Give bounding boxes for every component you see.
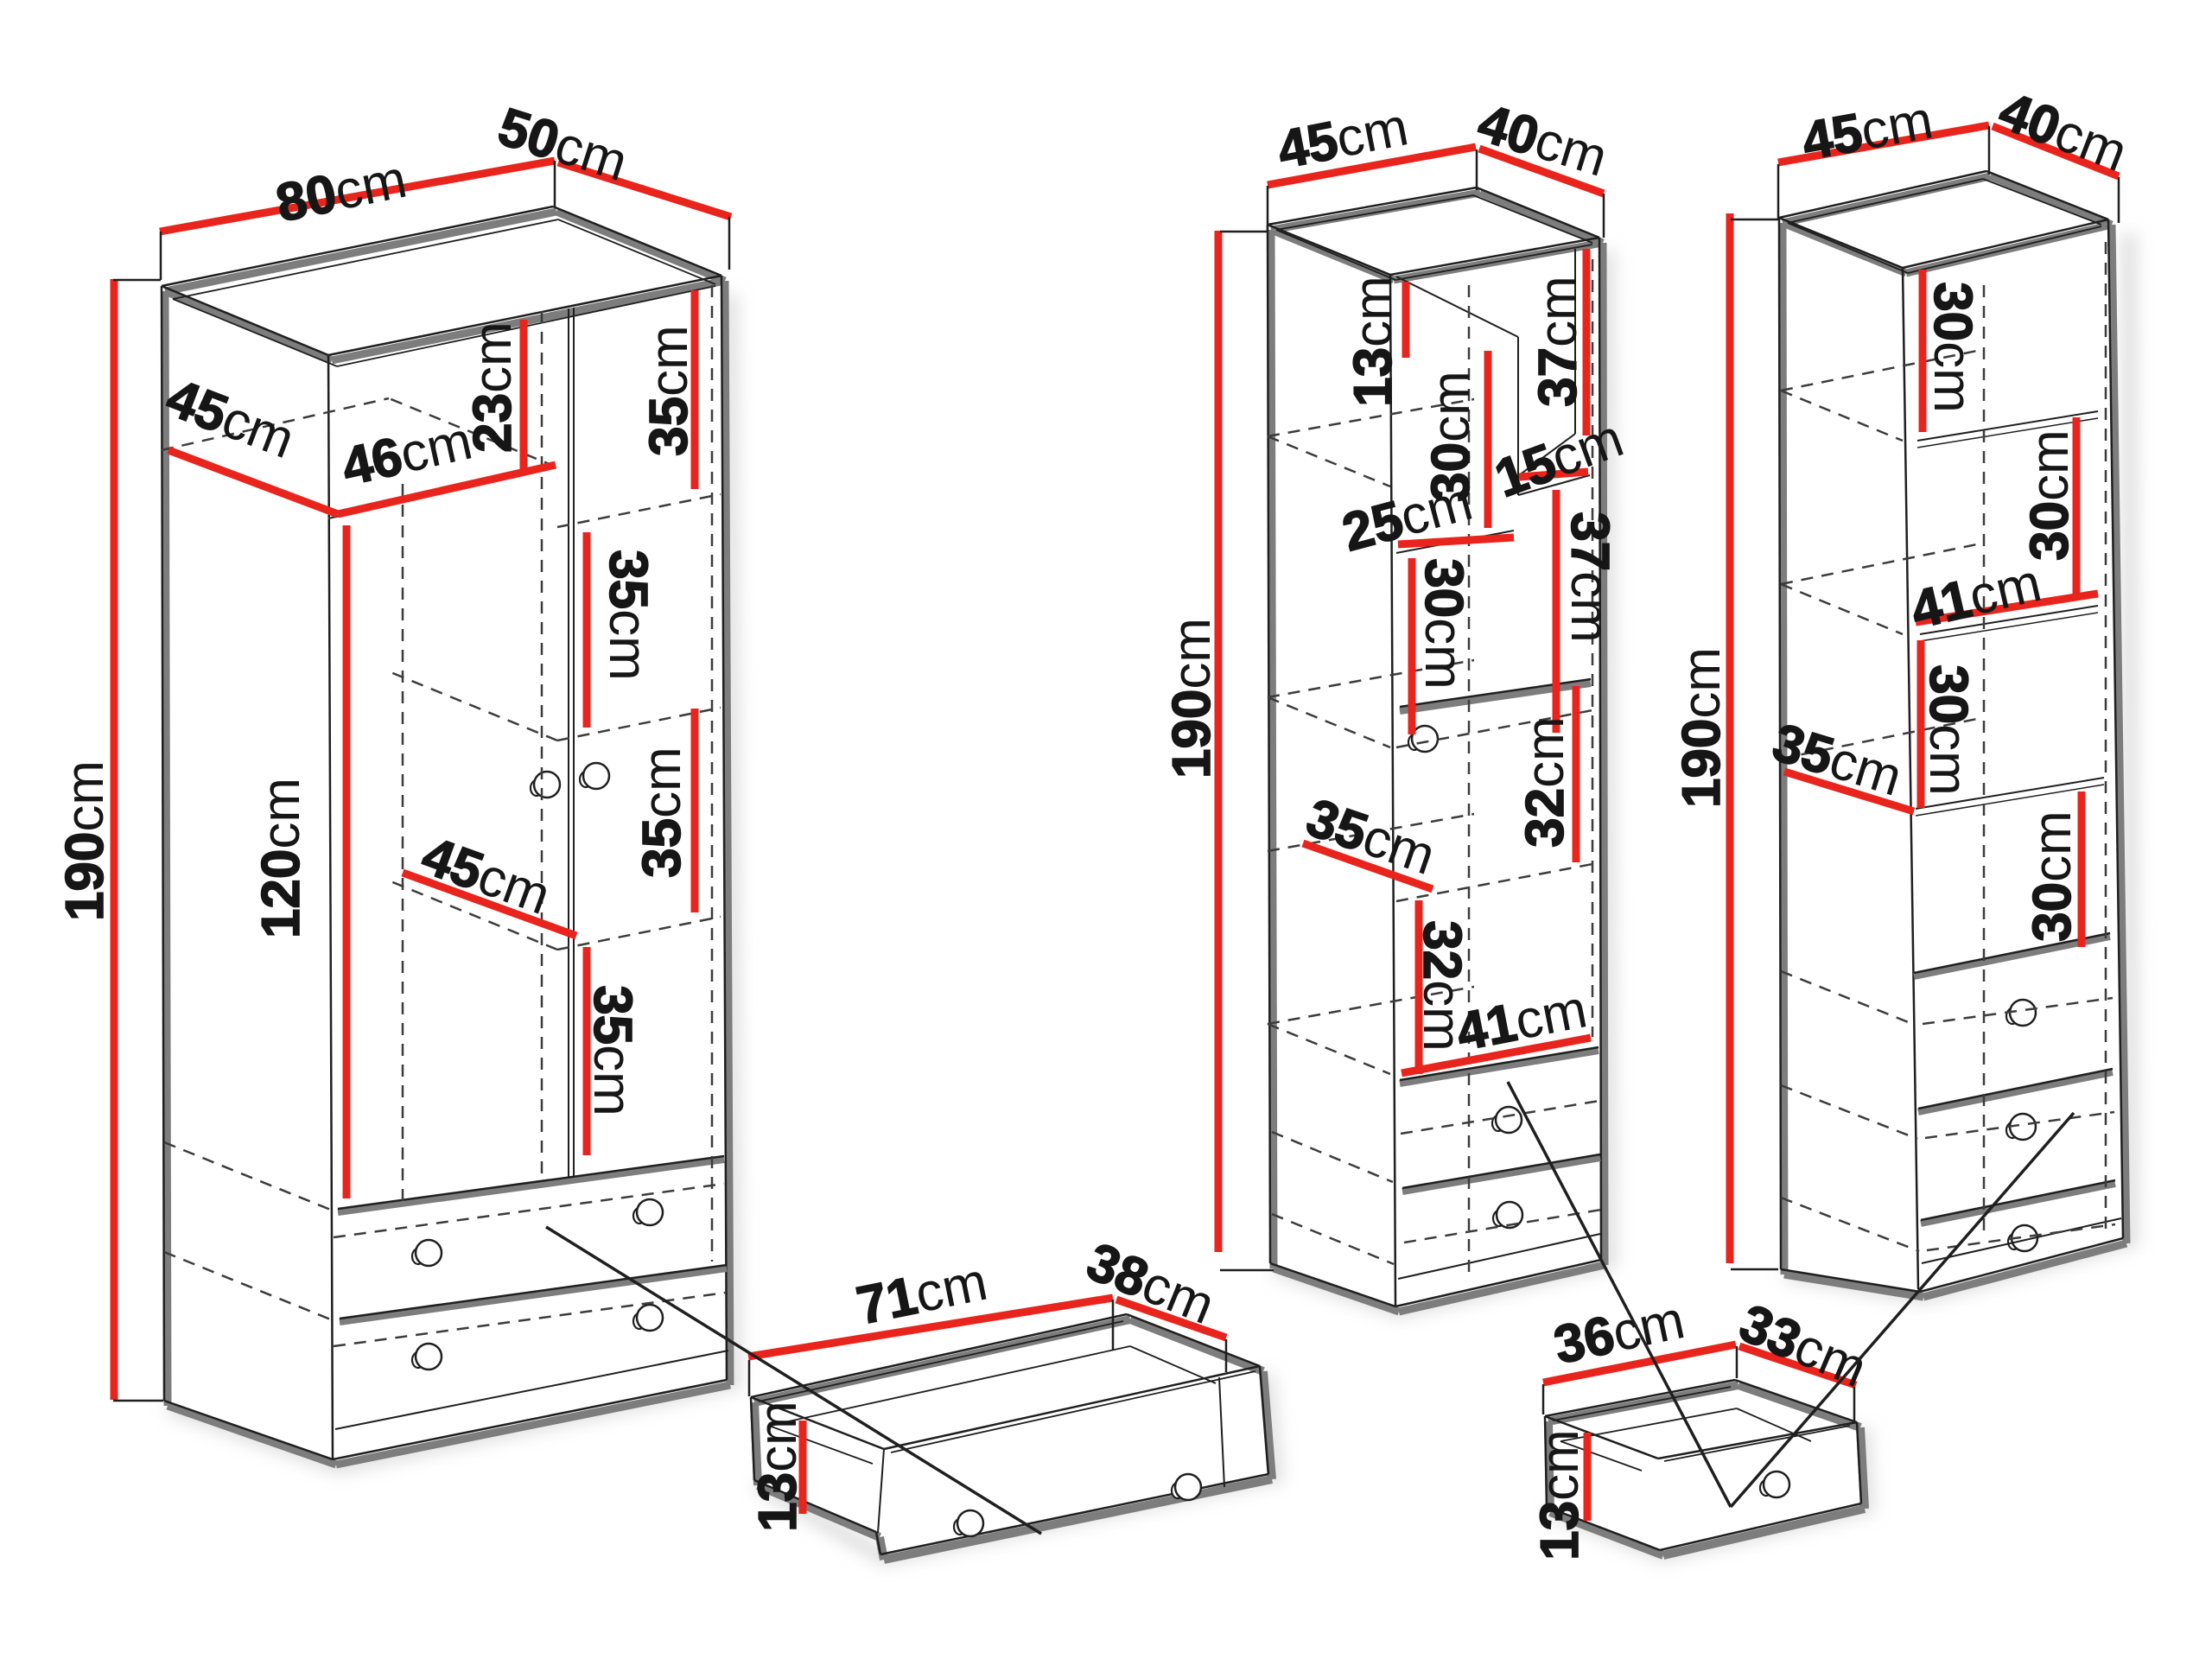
svg-text:35cm: 35cm	[582, 985, 642, 1116]
svg-text:190cm: 190cm	[55, 760, 115, 921]
svg-text:23cm: 23cm	[463, 321, 523, 453]
svg-text:30cm: 30cm	[2020, 429, 2080, 561]
svg-text:190cm: 190cm	[1162, 618, 1222, 779]
svg-text:35cm: 35cm	[639, 325, 699, 456]
svg-text:32cm: 32cm	[1516, 716, 1575, 848]
svg-text:37cm: 37cm	[1560, 512, 1619, 643]
svg-text:30cm: 30cm	[1414, 558, 1473, 690]
svg-text:30cm: 30cm	[2023, 810, 2082, 942]
svg-text:37cm: 37cm	[1529, 276, 1588, 407]
svg-text:13cm: 13cm	[1344, 276, 1403, 407]
svg-text:13cm: 13cm	[748, 1401, 808, 1532]
svg-text:35cm: 35cm	[598, 550, 658, 681]
svg-text:30cm: 30cm	[1918, 664, 1978, 796]
svg-text:30cm: 30cm	[1923, 282, 1982, 413]
svg-text:190cm: 190cm	[1672, 647, 1732, 808]
svg-text:35cm: 35cm	[632, 747, 692, 878]
svg-text:13cm: 13cm	[1530, 1429, 1590, 1560]
svg-text:120cm: 120cm	[251, 778, 311, 938]
